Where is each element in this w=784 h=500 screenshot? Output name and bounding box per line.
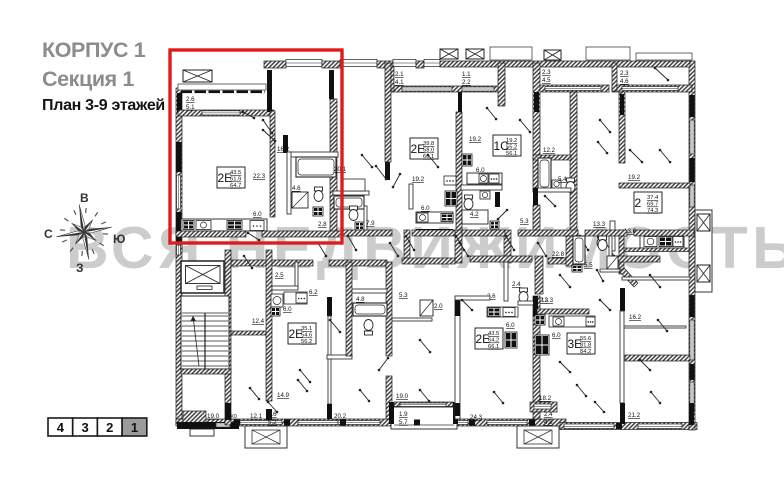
svg-text:1.1: 1.1 — [462, 71, 471, 78]
svg-text:2.3: 2.3 — [542, 69, 551, 76]
svg-text:4: 4 — [57, 420, 65, 435]
svg-text:5.5: 5.5 — [584, 262, 593, 269]
svg-text:2: 2 — [106, 420, 113, 435]
svg-text:2.2: 2.2 — [462, 79, 471, 86]
svg-text:5.3: 5.3 — [520, 218, 529, 225]
svg-text:6.2: 6.2 — [309, 289, 318, 296]
svg-text:5.3: 5.3 — [399, 292, 408, 299]
svg-text:39.8: 39.8 — [423, 141, 434, 147]
svg-text:2.5: 2.5 — [275, 272, 284, 279]
svg-text:2.8: 2.8 — [318, 221, 327, 228]
svg-text:4.1: 4.1 — [395, 79, 404, 86]
svg-text:2.4: 2.4 — [512, 281, 521, 288]
svg-text:58.0: 58.0 — [423, 148, 434, 154]
svg-text:22.8: 22.8 — [552, 251, 565, 258]
svg-text:7.9: 7.9 — [366, 220, 375, 227]
svg-text:4.5: 4.5 — [542, 77, 551, 84]
svg-text:56.1: 56.1 — [506, 151, 517, 157]
svg-text:54.6: 54.6 — [301, 333, 312, 339]
svg-text:3: 3 — [81, 420, 88, 435]
svg-text:84.2: 84.2 — [580, 349, 591, 355]
svg-text:5.7: 5.7 — [399, 419, 408, 426]
svg-text:В: В — [80, 191, 89, 205]
svg-text:13.3: 13.3 — [593, 221, 606, 228]
svg-text:55.6: 55.6 — [580, 336, 591, 342]
svg-text:1.9: 1.9 — [399, 411, 408, 418]
svg-text:4.6: 4.6 — [292, 185, 301, 192]
svg-text:С: С — [44, 227, 53, 241]
svg-text:66.1: 66.1 — [488, 344, 499, 350]
svg-text:19.0: 19.0 — [396, 393, 409, 400]
svg-text:2.3: 2.3 — [620, 70, 629, 77]
svg-text:2.6: 2.6 — [186, 96, 195, 103]
svg-text:4.8: 4.8 — [544, 419, 553, 426]
svg-text:61.9: 61.9 — [230, 177, 241, 183]
svg-text:43.5: 43.5 — [230, 170, 241, 176]
svg-text:1.6: 1.6 — [268, 411, 277, 418]
svg-text:21.2: 21.2 — [628, 412, 641, 419]
svg-text:19.0: 19.0 — [207, 413, 220, 420]
svg-text:5.4: 5.4 — [558, 176, 567, 183]
svg-text:6.0: 6.0 — [283, 306, 292, 313]
svg-text:6.0: 6.0 — [552, 332, 561, 339]
svg-text:19.2: 19.2 — [506, 138, 517, 144]
svg-text:12.2: 12.2 — [543, 147, 556, 154]
svg-text:19.2: 19.2 — [412, 176, 425, 183]
svg-text:19.2: 19.2 — [469, 136, 482, 143]
svg-text:Секция 1: Секция 1 — [42, 67, 134, 91]
svg-text:5.2: 5.2 — [268, 419, 277, 426]
svg-text:37.4: 37.4 — [647, 195, 659, 201]
svg-text:План 3-9 этажей: План 3-9 этажей — [42, 97, 165, 114]
svg-text:22.3: 22.3 — [253, 173, 266, 180]
svg-text:2.0: 2.0 — [434, 303, 443, 310]
svg-text:12.1: 12.1 — [250, 413, 263, 420]
svg-text:19.2: 19.2 — [628, 174, 641, 181]
svg-text:35.1: 35.1 — [301, 326, 312, 332]
svg-text:12.4: 12.4 — [252, 318, 265, 325]
svg-text:6.0: 6.0 — [421, 205, 430, 212]
svg-text:56.2: 56.2 — [301, 339, 312, 345]
svg-text:74.3: 74.3 — [647, 208, 658, 214]
svg-text:З: З — [76, 261, 84, 275]
svg-text:4.6: 4.6 — [620, 78, 629, 85]
svg-text:2: 2 — [635, 196, 642, 210]
svg-text:4.2: 4.2 — [470, 211, 479, 218]
svg-text:1: 1 — [131, 420, 138, 435]
svg-text:16.2: 16.2 — [629, 314, 642, 321]
svg-text:18.2: 18.2 — [539, 395, 552, 402]
svg-text:12.3: 12.3 — [541, 297, 554, 304]
svg-text:64.7: 64.7 — [230, 183, 241, 189]
svg-text:6.0: 6.0 — [506, 322, 515, 329]
svg-text:55.2: 55.2 — [506, 145, 517, 151]
svg-text:4.8: 4.8 — [356, 296, 365, 303]
svg-text:КОРПУС 1: КОРПУС 1 — [42, 38, 146, 62]
svg-text:2.1: 2.1 — [395, 71, 404, 78]
svg-text:5.1: 5.1 — [186, 104, 195, 111]
svg-text:64.2: 64.2 — [488, 338, 499, 344]
svg-text:43.5: 43.5 — [488, 331, 499, 337]
svg-text:81.8: 81.8 — [580, 343, 591, 349]
svg-text:69.7: 69.7 — [647, 202, 658, 208]
svg-text:14.9: 14.9 — [277, 392, 290, 399]
svg-text:6.0: 6.0 — [253, 211, 262, 218]
svg-text:20.2: 20.2 — [334, 413, 347, 420]
svg-text:Ю: Ю — [113, 232, 125, 246]
